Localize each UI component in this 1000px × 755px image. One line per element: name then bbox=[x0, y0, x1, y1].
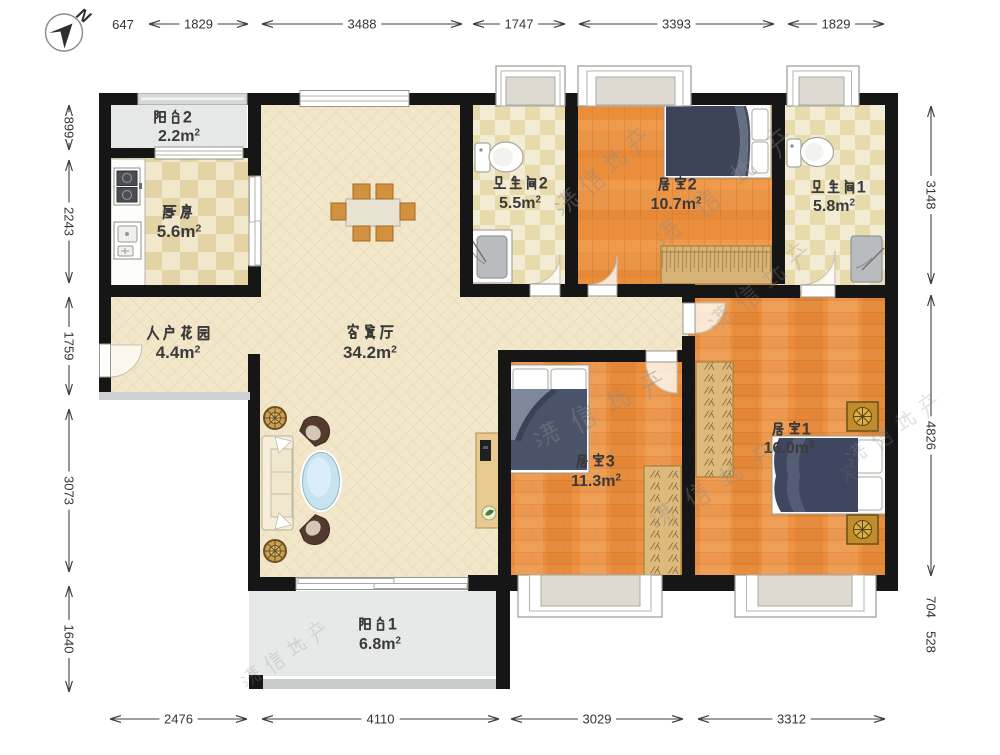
svg-text:5.5m2: 5.5m2 bbox=[499, 195, 541, 212]
svg-text:647: 647 bbox=[112, 17, 134, 32]
svg-text:1640: 1640 bbox=[61, 625, 76, 654]
svg-text:3029: 3029 bbox=[583, 712, 612, 727]
svg-text:3312: 3312 bbox=[777, 712, 806, 727]
svg-text:4826: 4826 bbox=[923, 421, 938, 450]
svg-text:2476: 2476 bbox=[164, 712, 193, 727]
svg-text:3073: 3073 bbox=[61, 476, 76, 505]
svg-text:6.8m2: 6.8m2 bbox=[359, 636, 401, 653]
svg-text:3488: 3488 bbox=[348, 17, 377, 32]
svg-text:5.8m2: 5.8m2 bbox=[813, 198, 855, 215]
svg-text:2.2m2: 2.2m2 bbox=[158, 128, 200, 145]
svg-text:2243: 2243 bbox=[61, 207, 76, 236]
svg-text:1: 1 bbox=[388, 616, 397, 634]
svg-text:1: 1 bbox=[802, 421, 811, 439]
svg-text:2: 2 bbox=[539, 175, 548, 193]
svg-text:2: 2 bbox=[183, 109, 192, 127]
svg-text:899: 899 bbox=[61, 117, 76, 139]
svg-text:3148: 3148 bbox=[923, 181, 938, 210]
svg-text:3393: 3393 bbox=[662, 17, 691, 32]
svg-text:1747: 1747 bbox=[505, 17, 534, 32]
svg-text:1829: 1829 bbox=[184, 17, 213, 32]
svg-text:4110: 4110 bbox=[367, 712, 395, 727]
svg-text:4.4m2: 4.4m2 bbox=[156, 343, 201, 362]
svg-text:34.2m2: 34.2m2 bbox=[343, 343, 397, 362]
svg-text:3: 3 bbox=[606, 453, 615, 471]
svg-text:16.0m2: 16.0m2 bbox=[764, 440, 815, 457]
svg-text:1759: 1759 bbox=[61, 332, 76, 361]
svg-text:528: 528 bbox=[923, 631, 938, 653]
svg-text:1: 1 bbox=[857, 179, 866, 197]
svg-text:11.3m2: 11.3m2 bbox=[571, 473, 621, 490]
svg-text:2: 2 bbox=[688, 176, 697, 194]
svg-text:704: 704 bbox=[923, 596, 938, 618]
svg-text:1829: 1829 bbox=[822, 17, 851, 32]
svg-text:5.6m2: 5.6m2 bbox=[157, 222, 202, 241]
